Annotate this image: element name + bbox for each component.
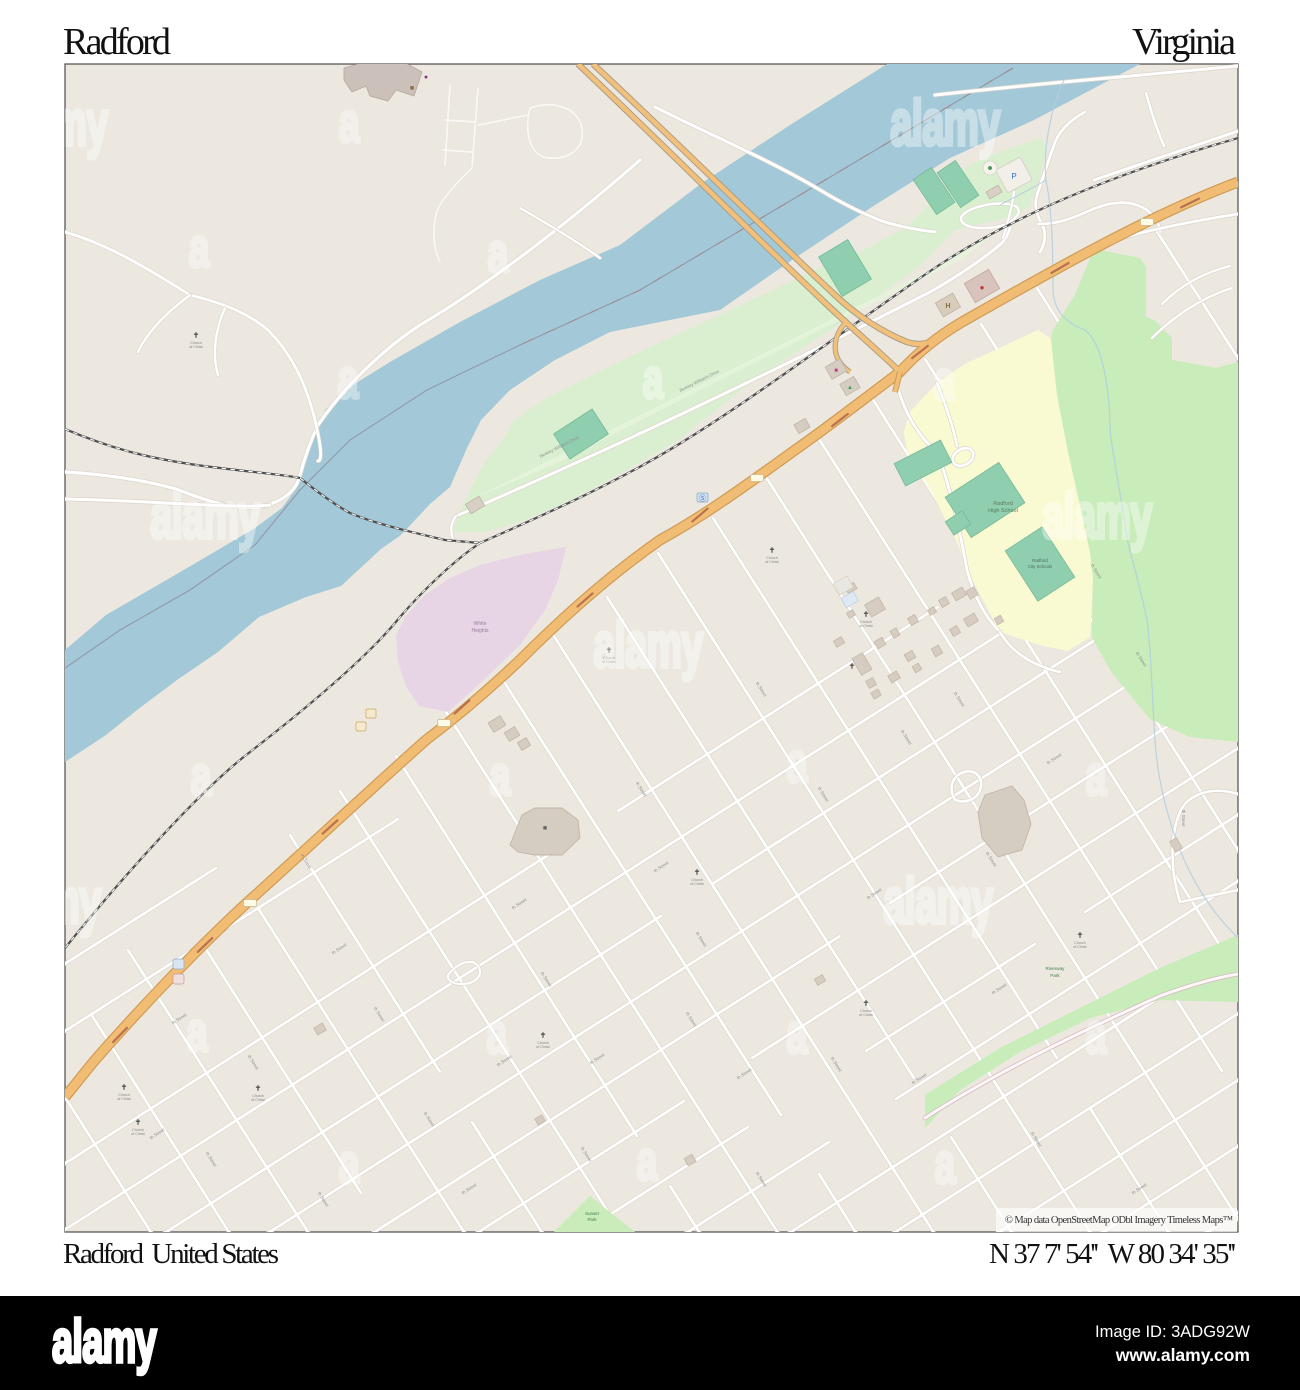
svg-text:Image ID: 3ADG92W: Image ID: 3ADG92W — [1095, 1323, 1250, 1341]
svg-text:of Christ: of Christ — [765, 560, 778, 564]
svg-text:a: a — [189, 216, 211, 280]
svg-text:of Christ: of Christ — [131, 1132, 144, 1136]
svg-text:Riverway: Riverway — [1046, 966, 1066, 971]
svg-text:of Christ: of Christ — [536, 1045, 549, 1049]
svg-text:a: a — [187, 1000, 209, 1064]
svg-text:of Christ: of Christ — [859, 1013, 872, 1017]
svg-text:Radford United States: Radford United States — [63, 1238, 279, 1270]
svg-text:Sunset: Sunset — [585, 1211, 599, 1216]
svg-text:▲: ▲ — [847, 385, 853, 391]
svg-text:of Christ: of Christ — [189, 345, 202, 349]
svg-text:P: P — [1011, 172, 1016, 181]
svg-text:of Christ: of Christ — [859, 624, 872, 628]
svg-text:© Map data OpenStreetMap ODbl: © Map data OpenStreetMap ODbl Imagery Ti… — [1005, 1215, 1233, 1226]
svg-text:Virginia: Virginia — [1132, 21, 1236, 63]
svg-text:Park: Park — [1050, 973, 1060, 978]
svg-text:White: White — [474, 621, 487, 627]
svg-text:a: a — [643, 347, 665, 411]
svg-text:a: a — [339, 91, 361, 155]
svg-text:Radford: Radford — [1032, 558, 1048, 563]
svg-text:a: a — [787, 1002, 809, 1066]
svg-text:■: ■ — [410, 85, 414, 92]
svg-text:alamy: alamy — [883, 867, 993, 938]
svg-text:of Christ: of Christ — [1073, 945, 1086, 949]
svg-text:a: a — [787, 731, 809, 795]
svg-text:a: a — [487, 1002, 509, 1066]
svg-text:a: a — [935, 1132, 957, 1196]
svg-text:of Christ: of Christ — [251, 1098, 264, 1102]
svg-text:th Street: th Street — [1181, 810, 1186, 827]
svg-text:●: ● — [424, 74, 428, 81]
svg-text:alamy: alamy — [1042, 482, 1152, 553]
svg-text:alamy: alamy — [890, 89, 1000, 160]
svg-text:N 37 7' 54'' W 80 34' 35'': N 37 7' 54'' W 80 34' 35'' — [989, 1238, 1236, 1270]
svg-text:City Schools: City Schools — [1028, 564, 1053, 569]
svg-text:alamy: alamy — [593, 611, 703, 682]
svg-text:www.alamy.com: www.alamy.com — [1115, 1345, 1250, 1365]
svg-text:a: a — [1086, 744, 1108, 808]
svg-text:Park: Park — [587, 1217, 597, 1222]
svg-text:a: a — [488, 221, 510, 285]
svg-text:a: a — [191, 744, 213, 808]
svg-text:Radford: Radford — [993, 501, 1013, 507]
svg-text:H: H — [945, 303, 950, 310]
svg-text:a: a — [339, 1132, 361, 1196]
svg-text:alamy: alamy — [52, 1308, 157, 1375]
svg-text:High School: High School — [988, 508, 1018, 514]
svg-text:a: a — [934, 349, 956, 413]
svg-text:a: a — [338, 347, 360, 411]
svg-text:■: ■ — [834, 368, 838, 374]
svg-text:a: a — [1086, 1002, 1108, 1066]
svg-text:Ⓢ: Ⓢ — [699, 495, 706, 503]
svg-text:alamy: alamy — [150, 482, 260, 553]
svg-text:Heights: Heights — [472, 628, 489, 634]
svg-text:a: a — [637, 1129, 659, 1193]
svg-text:●: ● — [980, 283, 985, 292]
svg-text:of Christ: of Christ — [117, 1097, 130, 1101]
svg-text:of Christ: of Christ — [690, 882, 703, 886]
svg-text:Radford: Radford — [63, 21, 171, 63]
svg-text:a: a — [490, 744, 512, 808]
svg-text:■: ■ — [543, 825, 547, 832]
